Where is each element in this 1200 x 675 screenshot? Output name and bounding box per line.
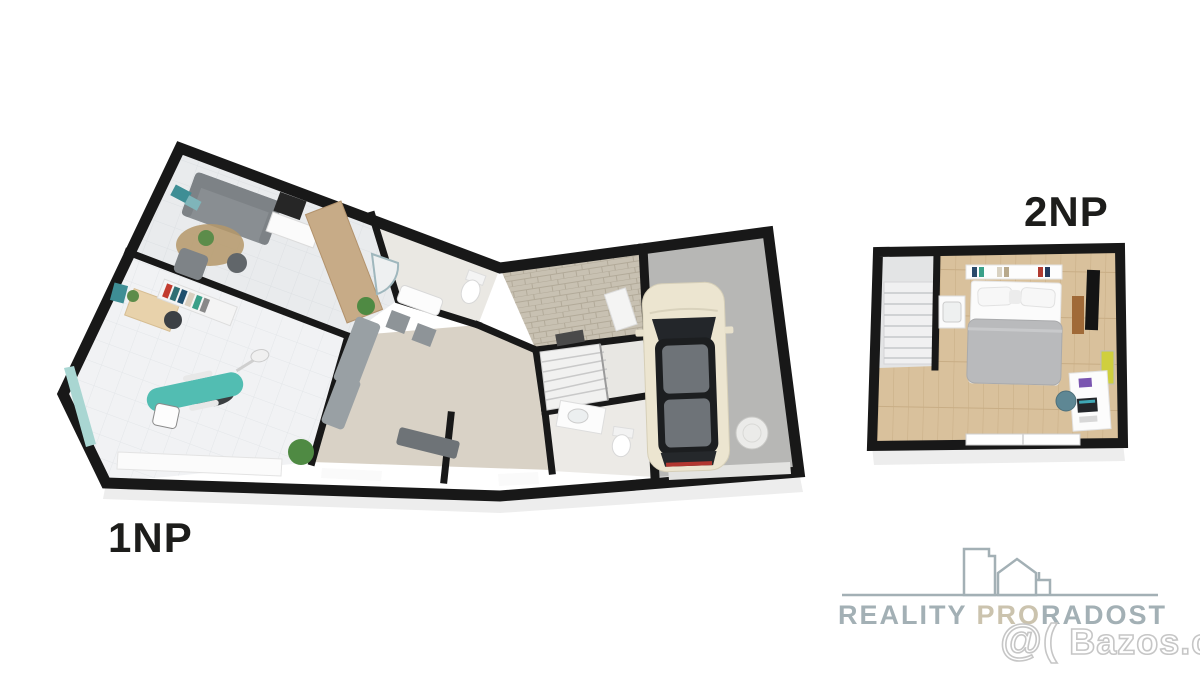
car <box>634 281 739 472</box>
office-chair <box>164 311 182 329</box>
floor-label-1np: 1NP <box>108 514 193 562</box>
bazos-watermark: @( Bazos.cz <box>1000 616 1200 665</box>
desk-chair <box>1056 391 1076 411</box>
water-heater <box>736 417 768 449</box>
staircase-2np <box>884 282 934 364</box>
floorplan-1np <box>63 148 803 513</box>
staircase-1np <box>540 344 608 410</box>
sink-basin <box>943 302 961 322</box>
logo-word-reality: REALITY <box>838 600 967 630</box>
desk-plant <box>127 290 139 302</box>
stool <box>227 253 247 273</box>
window-sill <box>498 472 539 486</box>
plant <box>288 439 314 465</box>
plant <box>198 230 214 246</box>
chair <box>385 310 410 334</box>
tv <box>1085 270 1100 330</box>
floorplan-render: 1NP 2NP REALITY PRORADOST @( Bazos.cz <box>0 0 1200 675</box>
wall-shelf <box>966 265 1062 279</box>
pillow <box>1020 287 1055 308</box>
watermark-site: Bazos.cz <box>1069 621 1200 662</box>
watermark-at-icon: @( <box>1000 616 1058 664</box>
media-shelf <box>1072 296 1084 334</box>
window-sill <box>321 468 382 481</box>
floor-label-2np: 2NP <box>1024 188 1109 236</box>
floorplan-2np <box>872 248 1125 465</box>
logo-skyline-icon <box>838 538 1162 598</box>
sink-basin <box>568 409 588 423</box>
plant <box>357 297 375 315</box>
pillow <box>978 287 1013 306</box>
dentist-stool <box>152 403 180 430</box>
bed <box>967 281 1064 385</box>
